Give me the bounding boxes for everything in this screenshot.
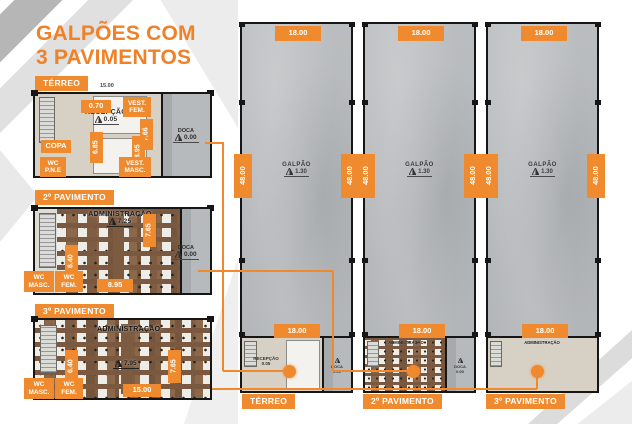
- dim-bottom: 18.00: [522, 324, 568, 338]
- room-label-vest-masc: VEST. MASC.: [119, 157, 151, 177]
- warehouse-floor-label-pav2: 2º PAVIMENTO: [363, 394, 442, 409]
- dim-side-left: 48.00: [480, 154, 498, 198]
- warehouse-hall: GALPÃO 1.30 18.00 48.00 48.00: [363, 22, 476, 338]
- dim-label: 7.65: [143, 214, 156, 247]
- room-label-wc-fem: WC FEM.: [55, 378, 83, 399]
- warehouse-plan-3: GALPÃO 1.30 18.00 48.00 48.00 ADMINISTRA…: [486, 22, 599, 393]
- level-value: 0.05: [246, 361, 286, 366]
- hall-label: GALPÃO 1.30: [365, 162, 474, 177]
- connector-line: [223, 370, 289, 372]
- room-label-vest-fem: VEST. FEM.: [123, 97, 151, 117]
- level-marker-icon: [95, 116, 102, 123]
- dim-label: 15.00: [123, 384, 161, 397]
- level-value: 0.00: [184, 251, 197, 258]
- connector-line: [332, 271, 334, 371]
- dim-label: 0.70: [81, 100, 111, 113]
- dim-label: 8.95: [97, 279, 133, 292]
- level-marker-icon: [175, 134, 182, 141]
- level-value: 0.05: [104, 116, 118, 123]
- connector-line: [198, 270, 333, 272]
- page-title-line1: GALPÕES COM: [36, 22, 196, 46]
- level-value: 7.95: [124, 360, 137, 367]
- mini-room-label: RECEPÇÃO 0.05: [246, 356, 286, 366]
- floor-label-pav2: 2º PAVIMENTO: [35, 190, 114, 205]
- warehouse-plan-2: GALPÃO 1.30 18.00 48.00 48.00 ADMINISTRA…: [363, 22, 476, 393]
- column-marker: [31, 316, 38, 322]
- level-marker-icon: [409, 168, 416, 175]
- dim-side-left: 48.00: [357, 154, 375, 198]
- column-marker: [31, 90, 38, 96]
- warehouse-plan-1: GALPÃO 1.30 18.00 48.00 48.00 RECEPÇÃO 0…: [240, 22, 353, 393]
- dim-top: 18.00: [521, 26, 567, 41]
- connector-line: [212, 388, 537, 390]
- connector-line: [333, 370, 413, 372]
- presentation-canvas: GALPÕES COM 3 PAVIMENTOS TÉRREO 15.00 RE…: [0, 0, 632, 424]
- dim-label-top: 15.00: [100, 83, 114, 89]
- warehouse-floor-label-terreo: TÉRREO: [242, 394, 295, 409]
- dim-side-left: 48.00: [234, 154, 252, 198]
- floor-label-terreo: TÉRREO: [35, 76, 88, 91]
- mini-room-label: ADMINISTRAÇÃO: [502, 340, 582, 345]
- dim-side-right: 48.00: [587, 154, 605, 198]
- stairs: [39, 213, 56, 268]
- column-markers: [362, 22, 368, 27]
- warehouse-hall: GALPÃO 1.30 18.00 48.00 48.00: [486, 22, 599, 338]
- connector-dot: [283, 365, 296, 378]
- level-marker-icon: [109, 218, 116, 225]
- page-title-line2: 3 PAVIMENTOS: [36, 46, 196, 70]
- connector-line: [222, 142, 224, 371]
- warehouse-floor-label-pav3: 3º PAVIMENTO: [486, 394, 565, 409]
- room-label-wc-masc: WC MASC.: [24, 271, 54, 292]
- room-label-wc-pne: WC P.N.E: [40, 157, 66, 177]
- dim-top: 18.00: [275, 26, 321, 41]
- hall-label: GALPÃO 1.30: [488, 162, 597, 177]
- mini-room-label: ADMINISTRAÇÃO: [373, 340, 439, 345]
- stairs: [40, 325, 57, 373]
- level-marker-icon: [532, 168, 539, 175]
- mini-plan-pav2: ADMINISTRAÇÃO DOCA 0.00: [363, 336, 476, 393]
- dim-label: 7.65: [168, 350, 181, 383]
- level-marker-icon: [335, 358, 340, 363]
- level-value: 1.30: [541, 169, 553, 175]
- mini-plan-terreo: RECEPÇÃO 0.05 DOCA 0.00: [240, 336, 353, 393]
- column-markers: [485, 22, 491, 27]
- level-value: 0.00: [449, 369, 471, 374]
- dock-label: DOCA 0.00: [173, 245, 199, 260]
- level-marker-icon: [175, 251, 182, 258]
- dim-label: 6.85: [90, 132, 103, 163]
- room-label-copa: COPA: [41, 140, 71, 153]
- floor-plan-pav2: ADMINISTRAÇÃO 7.25 7.65 6.40 8.95 WC MAS…: [33, 207, 212, 295]
- floor-plan-pav3: ADMINISTRAÇÃO 7.95 6.40 7.65 WC MASC. WC…: [33, 318, 212, 400]
- level-value: 7.25: [118, 218, 132, 225]
- dim-bottom: 18.00: [399, 324, 445, 338]
- connector-line: [205, 142, 223, 144]
- level-marker-icon: [458, 358, 463, 363]
- floor-plan-terreo: RECEPÇÃO 0.05 0.70 VEST. FEM. 7.66 COPA …: [33, 92, 212, 178]
- level-value: 1.30: [418, 169, 430, 175]
- column-marker: [31, 205, 38, 211]
- warehouse-hall: GALPÃO 1.30 18.00 48.00 48.00: [240, 22, 353, 338]
- room-label-wc-fem: WC FEM.: [55, 271, 83, 292]
- dim-bottom: 18.00: [274, 324, 320, 338]
- hall-label: GALPÃO 1.30: [242, 162, 351, 177]
- level-marker-icon: [115, 360, 122, 367]
- connector-dot: [407, 365, 420, 378]
- level-value: 1.30: [295, 169, 307, 175]
- level-marker-icon: [286, 168, 293, 175]
- dock-label: DOCA 0.00: [173, 128, 199, 143]
- page-title: GALPÕES COM 3 PAVIMENTOS: [36, 22, 196, 70]
- stairs: [39, 97, 55, 143]
- column-markers: [239, 22, 245, 27]
- mini-dock-label: DOCA 0.00: [449, 358, 471, 374]
- room-label-wc-masc: WC MASC.: [24, 378, 54, 399]
- level-value: 0.00: [184, 134, 197, 141]
- level-label: 7.95: [113, 360, 139, 369]
- mini-plan-pav3: ADMINISTRAÇÃO: [486, 336, 599, 393]
- room-label-administracao: ADMINISTRAÇÃO: [97, 326, 160, 333]
- connector-dot: [531, 365, 544, 378]
- stairs: [490, 341, 502, 367]
- dim-top: 18.00: [398, 26, 444, 41]
